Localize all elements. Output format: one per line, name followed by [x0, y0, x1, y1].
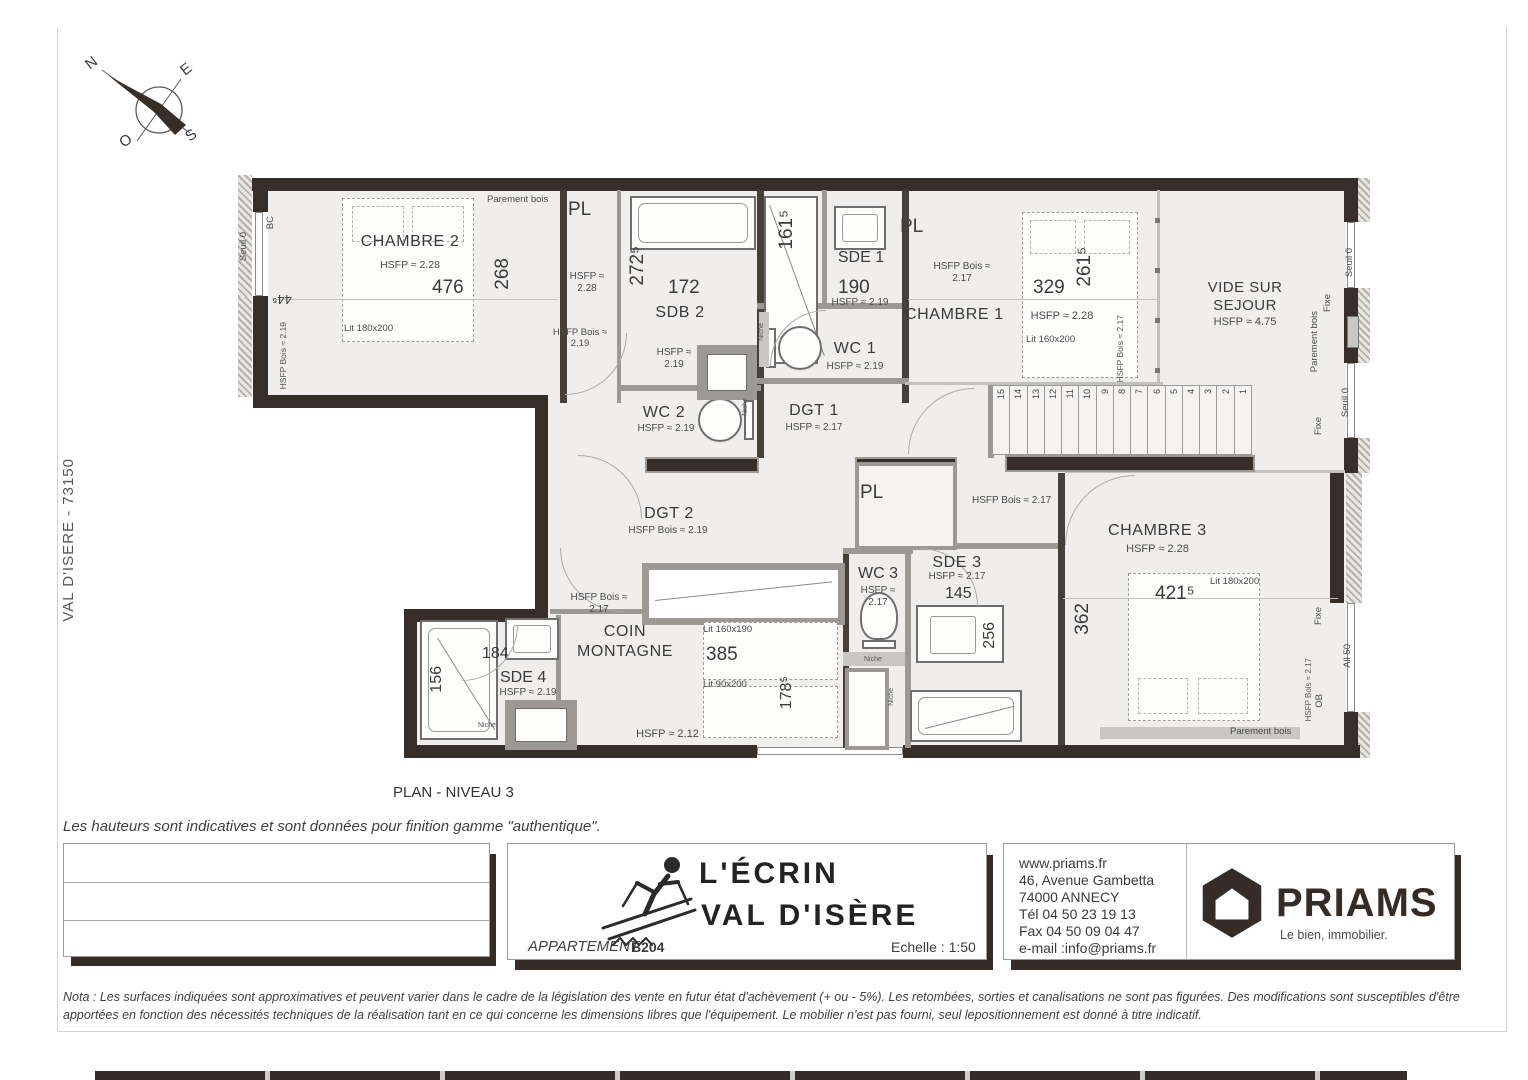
wall-exterior-bottom-right [903, 745, 1360, 758]
priams-wordmark: PRIAMS [1276, 880, 1438, 926]
stair-step: 6 [1148, 386, 1165, 454]
wall-exterior-right-a [1344, 178, 1358, 222]
window-sill-hatch [1358, 288, 1370, 363]
stair-step: 12 [1045, 386, 1062, 454]
label-chambre1-side-hsfp: HSFP Bois ≈ 2.17 [1116, 315, 1126, 382]
stair-step-number: 11 [1065, 389, 1075, 398]
label-niche-5: Niche [478, 722, 496, 730]
stair-step: 2 [1217, 386, 1234, 454]
dim-shower: 161⁵ [776, 210, 798, 250]
stair-step: 9 [1097, 386, 1114, 454]
compass-west: O [116, 131, 136, 152]
wall-exterior-left-upper [253, 178, 268, 212]
stair-step-number: 14 [1013, 389, 1023, 399]
room-chambre2: CHAMBRE 2 [330, 233, 490, 251]
room-coin-line1: COIN [565, 623, 685, 641]
stair-step-number: 10 [1082, 389, 1092, 399]
room-sde1: SDE 1 [826, 249, 896, 267]
window-sill-hatch [1358, 438, 1370, 473]
lintel-wc2 [645, 457, 759, 473]
nota-line2: apportées en fonction des nécessités tec… [63, 1008, 1508, 1022]
label-pl1-hsfp: HSFP ≈ 2.28 [563, 271, 611, 294]
label-parement-bois-top: Parement bois [487, 195, 548, 206]
bed-chambre3-pillow [1198, 678, 1248, 714]
stair-step-number: 3 [1203, 389, 1213, 394]
shower-tray-sde4-inner [515, 708, 567, 742]
label-coin-lit1: Lit 160x190 [703, 625, 752, 636]
room-chambre2-hsfp: HSFP ≈ 2.28 [330, 259, 490, 271]
room-vide-hsfp: HSFP ≈ 4.75 [1185, 316, 1305, 329]
stair-step: 14 [1010, 386, 1027, 454]
stair-step: 7 [1131, 386, 1148, 454]
company-contact: www.priams.fr46, Avenue Gambetta74000 AN… [1019, 855, 1156, 957]
room-chambre1-hsfp-bois: HSFP Bois ≈ 2.17 [928, 261, 996, 284]
wall-exterior-right-c [1344, 438, 1358, 473]
room-wc2: WC 2 [628, 404, 700, 422]
contact-line: www.priams.fr [1019, 855, 1156, 872]
contact-line: Tél 04 50 23 19 13 [1019, 906, 1156, 923]
dim-sde4-h: 156 [428, 666, 446, 693]
basin-sde3-inner [930, 616, 976, 654]
residence-title-box: L'ÉCRIN VAL D'ISÈRE APPARTEMENT: B204 Ec… [507, 843, 987, 960]
stair-step: 3 [1200, 386, 1217, 454]
room-wc1: WC 1 [815, 340, 895, 358]
dim-line-chambre3 [1063, 598, 1338, 599]
wall-exterior-right-d [1344, 712, 1358, 758]
bottom-cutoff-strip [95, 1071, 1407, 1080]
stair-step-number: 13 [1031, 389, 1041, 399]
toilet-wc3-tank [862, 640, 896, 649]
stair-step-number: 9 [1100, 389, 1110, 394]
room-sdb2: SDB 2 [640, 304, 720, 322]
room-dgt2-hsfp: HSFP Bois ≈ 2.19 [618, 525, 718, 537]
sheet-border-left [57, 28, 58, 1032]
dim-sde3-basin: 256 [981, 622, 999, 649]
room-dgt1-hsfp: HSFP ≈ 2.17 [770, 422, 858, 434]
room-wc2-hsfp: HSFP ≈ 2.19 [620, 423, 712, 435]
balustrade-post [1155, 268, 1160, 273]
label-niche-1: Niche [758, 323, 766, 341]
apartment-value: B204 [631, 939, 664, 955]
window-sill-hatch [238, 297, 252, 397]
partition-pl-sdb2 [617, 190, 621, 403]
apartment-label: APPARTEMENT: [528, 938, 642, 955]
label-niche-3: Niche [864, 656, 882, 664]
label-niche-2: Niche [742, 398, 750, 416]
wall-exterior-left-bottom [404, 609, 417, 758]
location-side-text: VAL D'ISERE - 73150 [60, 458, 77, 622]
room-dgt2: DGT 2 [628, 505, 710, 523]
room-sde3: SDE 3 [918, 554, 996, 572]
room-wc3-hsfp: HSFP ≈ 2.17 [854, 585, 902, 608]
room-chambre3: CHAMBRE 3 [1108, 522, 1207, 540]
balustrade-post [1155, 218, 1160, 223]
bed-chambre1-pillow [1030, 220, 1076, 254]
bathtub-sde3-inner [918, 697, 1014, 735]
label-fixe-right-2: Fixe [1314, 417, 1325, 435]
priams-logo-icon [1200, 866, 1264, 940]
scale-value: Echelle : 1:50 [891, 939, 976, 955]
label-seuil0-left: Seuil 0 [239, 232, 250, 261]
stair-step: 15 [993, 386, 1010, 454]
closet-pl3 [855, 462, 957, 550]
stair-step: 11 [1062, 386, 1079, 454]
schedule-box [63, 843, 490, 957]
dim-chambre3-w: 421⁵ [1155, 583, 1195, 605]
basin-sde1-inner [842, 214, 878, 242]
sheet-border-bottom [57, 1031, 1507, 1032]
company-divider [1186, 844, 1187, 959]
dim-coin-w: 385 [706, 644, 738, 666]
wall-exterior-left-lower [253, 296, 268, 408]
dim-chambre2-h: 268 [492, 258, 514, 290]
contact-line: 46, Avenue Gambetta [1019, 872, 1156, 889]
toilet-wc2-bowl [698, 398, 742, 442]
label-seuil0-right-2: Seuil 0 [1341, 388, 1352, 417]
stairs: 151413121110987654321 [992, 385, 1252, 455]
stair-step: 8 [1114, 386, 1131, 454]
dim-sde4-w: 184 [482, 645, 509, 663]
wall-notch-right [535, 395, 548, 622]
wall-exterior-top [252, 178, 1358, 191]
stair-step-number: 8 [1117, 389, 1127, 394]
stair-guard-rail [1005, 455, 1255, 472]
label-all50: All 50 [1343, 644, 1354, 668]
room-chambre1: CHAMBRE 1 [905, 306, 1004, 324]
stair-step-number: 2 [1221, 389, 1231, 394]
stair-step-number: 12 [1048, 389, 1058, 399]
label-pl3-hsfp: HSFP Bois ≈ 2.17 [972, 495, 1051, 507]
residence-name-line1: L'ÉCRIN [699, 857, 839, 892]
stair-step-number: 7 [1134, 389, 1144, 394]
dim-line-chambre1 [908, 299, 1158, 300]
shower-tray-sdb2-south-inner [707, 354, 747, 391]
room-sde4: SDE 4 [500, 669, 546, 687]
window-sill-hatch [1358, 178, 1370, 222]
dim-coin-h: 178⁵ [778, 676, 796, 709]
compass-south: S [182, 126, 200, 146]
partition-sde3-chambre3 [1058, 473, 1065, 745]
stair-step: 5 [1166, 386, 1183, 454]
room-sde4-hsfp: HSFP ≈ 2.19 [483, 687, 573, 699]
label-coin-lit2: Lit 90x200 [703, 680, 747, 691]
window-left [255, 212, 263, 296]
room-wc1-hsfp: HSFP ≈ 2.19 [810, 361, 900, 373]
room-sdb2-hsfp: HSFP ≈ 2.19 [650, 347, 698, 370]
room-pl1: PL [568, 199, 591, 221]
room-chambre3-hsfp: HSFP ≈ 2.28 [1100, 543, 1215, 556]
coin-storage-unit [642, 563, 845, 625]
window-seat-block [1347, 316, 1359, 348]
heights-note: Les hauteurs sont indicatives et sont do… [63, 818, 601, 835]
contact-line: e-mail :info@priams.fr [1019, 940, 1156, 957]
room-pl2: PL [900, 216, 923, 238]
label-niche-4: Niche [888, 688, 896, 706]
contact-line: 74000 ANNECY [1019, 889, 1156, 906]
bed-chambre3-pillow [1138, 678, 1188, 714]
plan-sheet: N E O S VAL D'ISERE - 73150 [0, 0, 1528, 1080]
label-fixe-right-1: Fixe [1323, 294, 1334, 312]
label-chambre2-wall-hsfp: HSFP Bois ≈ 2.19 [279, 322, 289, 389]
contact-line: Fax 04 50 09 04 47 [1019, 923, 1156, 940]
dim-chambre2-w: 476 [432, 277, 464, 299]
compass-rose: N E O S [72, 48, 242, 178]
label-chambre1-lit: Lit 160x200 [1026, 335, 1075, 346]
dim-sdb2-h: 272⁵ [627, 246, 649, 286]
label-parement-bois-right: Parement bois [1310, 311, 1321, 372]
label-coin-above-hsfp: HSFP Bois ≈ 2.17 [565, 592, 633, 615]
room-vide-line2: SEJOUR [1185, 297, 1305, 314]
schedule-row-divider [64, 882, 489, 883]
schedule-row-divider [64, 920, 489, 921]
room-vide-line1: VIDE SUR [1185, 279, 1305, 296]
shower-panel-coin [845, 668, 889, 750]
label-ob: OB [1315, 694, 1326, 708]
dim-sdb2-w: 172 [668, 277, 700, 299]
label-parement-bois-bottom: Parement bois [1230, 727, 1291, 738]
dim-sde1-w: 190 [838, 277, 870, 299]
basin-sde4-inner [513, 625, 551, 653]
sheet-border-right [1506, 28, 1507, 1032]
room-sde1-hsfp: HSFP ≈ 2.19 [815, 297, 905, 309]
bathtub-sdb2-inner [638, 203, 748, 243]
stair-step-number: 6 [1152, 389, 1162, 394]
dim-sde3-h: 362 [1072, 603, 1094, 635]
balustrade-post [1155, 318, 1160, 323]
dim-chambre1-h: 261⁵ [1074, 247, 1096, 287]
skier-logo [593, 852, 708, 950]
label-hall-hsfp: HSFP Bois ≈ 2.19 [548, 328, 612, 350]
room-chambre1-hsfp: HSFP ≈ 2.28 [1022, 310, 1102, 323]
stair-step: 1 [1235, 386, 1251, 454]
dim-chambre1-w: 329 [1033, 277, 1065, 299]
label-chambre3-lit: Lit 180x200 [1210, 577, 1259, 588]
label-bc: BC [266, 216, 277, 229]
company-box: www.priams.fr46, Avenue Gambetta74000 AN… [1003, 843, 1455, 960]
stair-step-number: 15 [996, 389, 1006, 399]
stair-step: 10 [1079, 386, 1096, 454]
label-chambre2-corner-dim: 44⁵ [272, 291, 292, 306]
stair-step: 13 [1028, 386, 1045, 454]
label-seuil0-right-1: Seuil 0 [1345, 248, 1356, 277]
compass-east: E [177, 60, 195, 80]
room-wc3: WC 3 [843, 565, 913, 583]
room-pl3: PL [860, 482, 883, 504]
dim-sde3-w: 145 [945, 585, 972, 603]
balustrade-post [1155, 368, 1160, 373]
stair-step-number: 1 [1238, 389, 1248, 394]
plan-title: PLAN - NIVEAU 3 [393, 784, 514, 801]
wall-notch-top [253, 395, 548, 408]
bed-coin-lower [703, 686, 838, 738]
compass-north: N [82, 53, 101, 73]
window-sill-hatch [1346, 473, 1362, 603]
stair-step-number: 5 [1169, 389, 1179, 394]
wall-exterior-bottom-left [404, 745, 757, 758]
dim-line-chambre2 [272, 299, 558, 300]
priams-tagline: Le bien, immobilier. [1280, 928, 1388, 942]
label-fixe-chambre3: Fixe [1314, 607, 1325, 625]
partition-wc1-bottom [757, 378, 909, 384]
residence-name-line2: VAL D'ISÈRE [701, 899, 918, 934]
room-dgt1: DGT 1 [773, 402, 855, 420]
stair-step-number: 4 [1186, 389, 1196, 394]
label-chambre3-side-hsfp: HSFP Bois ≈ 2.17 [1304, 658, 1313, 721]
stair-step: 4 [1183, 386, 1200, 454]
label-coin-low-hsfp: HSFP ≈ 2.12 [620, 728, 715, 741]
wall-chambre3-right [1330, 473, 1344, 603]
room-coin-line2: MONTAGNE [560, 643, 690, 661]
room-sde3-hsfp: HSFP ≈ 2.17 [912, 571, 1002, 583]
label-chambre2-lit: Lit 180x200 [344, 324, 393, 335]
nota-line1: Nota : Les surfaces indiquées sont appro… [63, 990, 1508, 1004]
